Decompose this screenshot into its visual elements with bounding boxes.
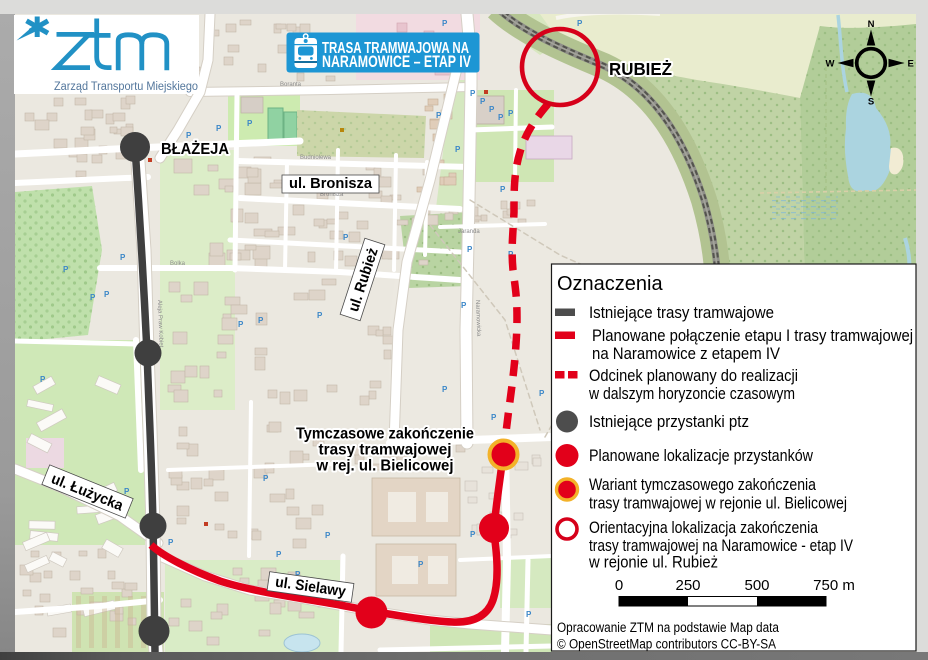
svg-text:Planowane lokalizacje przystan: Planowane lokalizacje przystanków: [589, 447, 813, 465]
svg-text:P: P: [263, 474, 269, 483]
svg-text:w rej. ul. Bielicowej: w rej. ul. Bielicowej: [316, 458, 454, 475]
svg-text:P: P: [539, 389, 545, 398]
svg-text:P: P: [480, 97, 486, 106]
svg-text:P: P: [418, 560, 424, 569]
svg-text:Boranta: Boranta: [280, 82, 302, 88]
svg-text:P: P: [40, 375, 46, 384]
svg-text:P: P: [489, 105, 495, 114]
svg-text:Istniejące przystanki ptz: Istniejące przystanki ptz: [589, 413, 749, 431]
svg-text:NARAMOWICE – ETAP IV: NARAMOWICE – ETAP IV: [322, 53, 471, 71]
svg-text:trasy tramwajowej: trasy tramwajowej: [319, 442, 452, 459]
svg-text:P: P: [467, 245, 473, 254]
svg-text:0: 0: [615, 577, 623, 594]
svg-text:P: P: [526, 610, 532, 619]
svg-text:Orientacyjna lokalizacja zakoń: Orientacyjna lokalizacja zakończenia: [589, 519, 819, 537]
svg-text:Istniejące trasy tramwajowe: Istniejące trasy tramwajowe: [589, 304, 774, 322]
svg-text:250: 250: [675, 577, 700, 594]
svg-text:P: P: [343, 233, 349, 242]
svg-text:P: P: [325, 531, 331, 540]
svg-text:Jaranda: Jaranda: [458, 229, 480, 235]
svg-text:trasy tramwajowej w rejonie ul: trasy tramwajowej w rejonie ul. Bielicow…: [589, 495, 847, 513]
svg-text:Bolka: Bolka: [170, 261, 186, 267]
svg-text:© OpenStreetMap contributors C: © OpenStreetMap contributors CC-BY-SA: [557, 637, 776, 652]
svg-text:Budniolewa: Budniolewa: [300, 155, 332, 161]
svg-text:P: P: [317, 311, 323, 320]
svg-text:P: P: [500, 185, 506, 194]
svg-text:750 m: 750 m: [813, 577, 855, 594]
svg-text:Odcinek planowany do realizacj: Odcinek planowany do realizacji: [589, 367, 798, 385]
svg-text:P: P: [186, 131, 192, 140]
svg-text:P: P: [238, 320, 244, 329]
svg-text:P: P: [216, 124, 222, 133]
svg-text:W: W: [826, 58, 835, 69]
svg-text:P: P: [258, 316, 264, 325]
svg-text:P: P: [276, 550, 282, 559]
svg-text:P: P: [247, 119, 253, 128]
svg-text:P: P: [63, 265, 69, 274]
svg-text:P: P: [442, 385, 448, 394]
svg-text:N: N: [868, 19, 875, 30]
svg-text:ul. Bronisza: ul. Bronisza: [289, 175, 373, 192]
svg-text:trasy tramwajowej na Naramowic: trasy tramwajowej na Naramowice - etap I…: [589, 537, 853, 555]
svg-text:P: P: [442, 19, 448, 28]
svg-text:P: P: [498, 113, 504, 122]
svg-text:na Naramowice z etapem IV: na Naramowice z etapem IV: [592, 345, 780, 363]
svg-text:Tymczasowe zakończenie: Tymczasowe zakończenie: [296, 426, 474, 443]
svg-text:Opracowanie ZTM na podstawie M: Opracowanie ZTM na podstawie Map data: [557, 620, 779, 635]
svg-text:RUBIEŻ: RUBIEŻ: [609, 59, 672, 79]
svg-text:w dalszym horyzoncie czasowym: w dalszym horyzoncie czasowym: [588, 385, 795, 403]
svg-text:P: P: [104, 290, 110, 299]
svg-text:S: S: [868, 97, 874, 108]
svg-text:w rejonie ul. Rubież: w rejonie ul. Rubież: [588, 554, 718, 572]
svg-text:Planowane połączenie etapu I t: Planowane połączenie etapu I trasy tramw…: [592, 327, 913, 345]
svg-text:P: P: [120, 253, 126, 262]
svg-text:P: P: [470, 89, 476, 98]
svg-text:BŁAŻEJA: BŁAŻEJA: [161, 140, 229, 158]
svg-text:P: P: [168, 538, 174, 547]
svg-text:P: P: [124, 487, 130, 496]
svg-text:P: P: [436, 111, 442, 120]
svg-text:Zarząd Transportu Miejskiego: Zarząd Transportu Miejskiego: [54, 81, 198, 93]
svg-text:P: P: [461, 301, 467, 310]
svg-text:P: P: [577, 19, 583, 28]
svg-text:E: E: [908, 58, 914, 69]
svg-text:P: P: [508, 109, 514, 118]
svg-text:Wariant tymczasowego zakończen: Wariant tymczasowego zakończenia: [589, 476, 817, 494]
svg-text:P: P: [455, 145, 461, 154]
svg-text:P: P: [491, 413, 497, 422]
svg-text:P: P: [90, 293, 96, 302]
svg-text:P: P: [470, 530, 476, 539]
svg-text:Oznaczenia: Oznaczenia: [557, 273, 663, 295]
svg-text:500: 500: [744, 577, 769, 594]
